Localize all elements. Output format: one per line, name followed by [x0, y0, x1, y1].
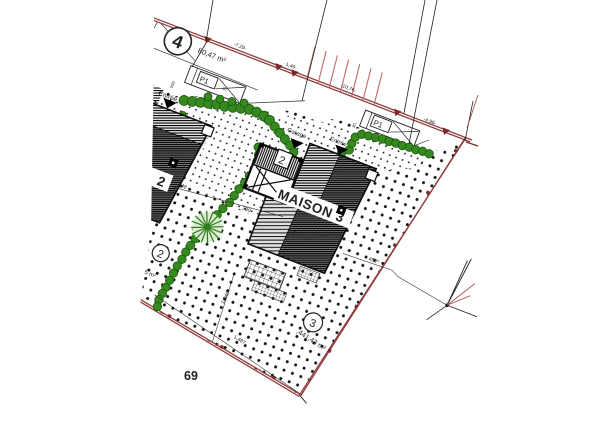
svg-text:80,47 m²: 80,47 m²	[197, 46, 228, 65]
svg-text:559: 559	[169, 80, 176, 89]
svg-text:-4,98-: -4,98-	[423, 117, 438, 127]
svg-text:69: 69	[184, 369, 198, 383]
